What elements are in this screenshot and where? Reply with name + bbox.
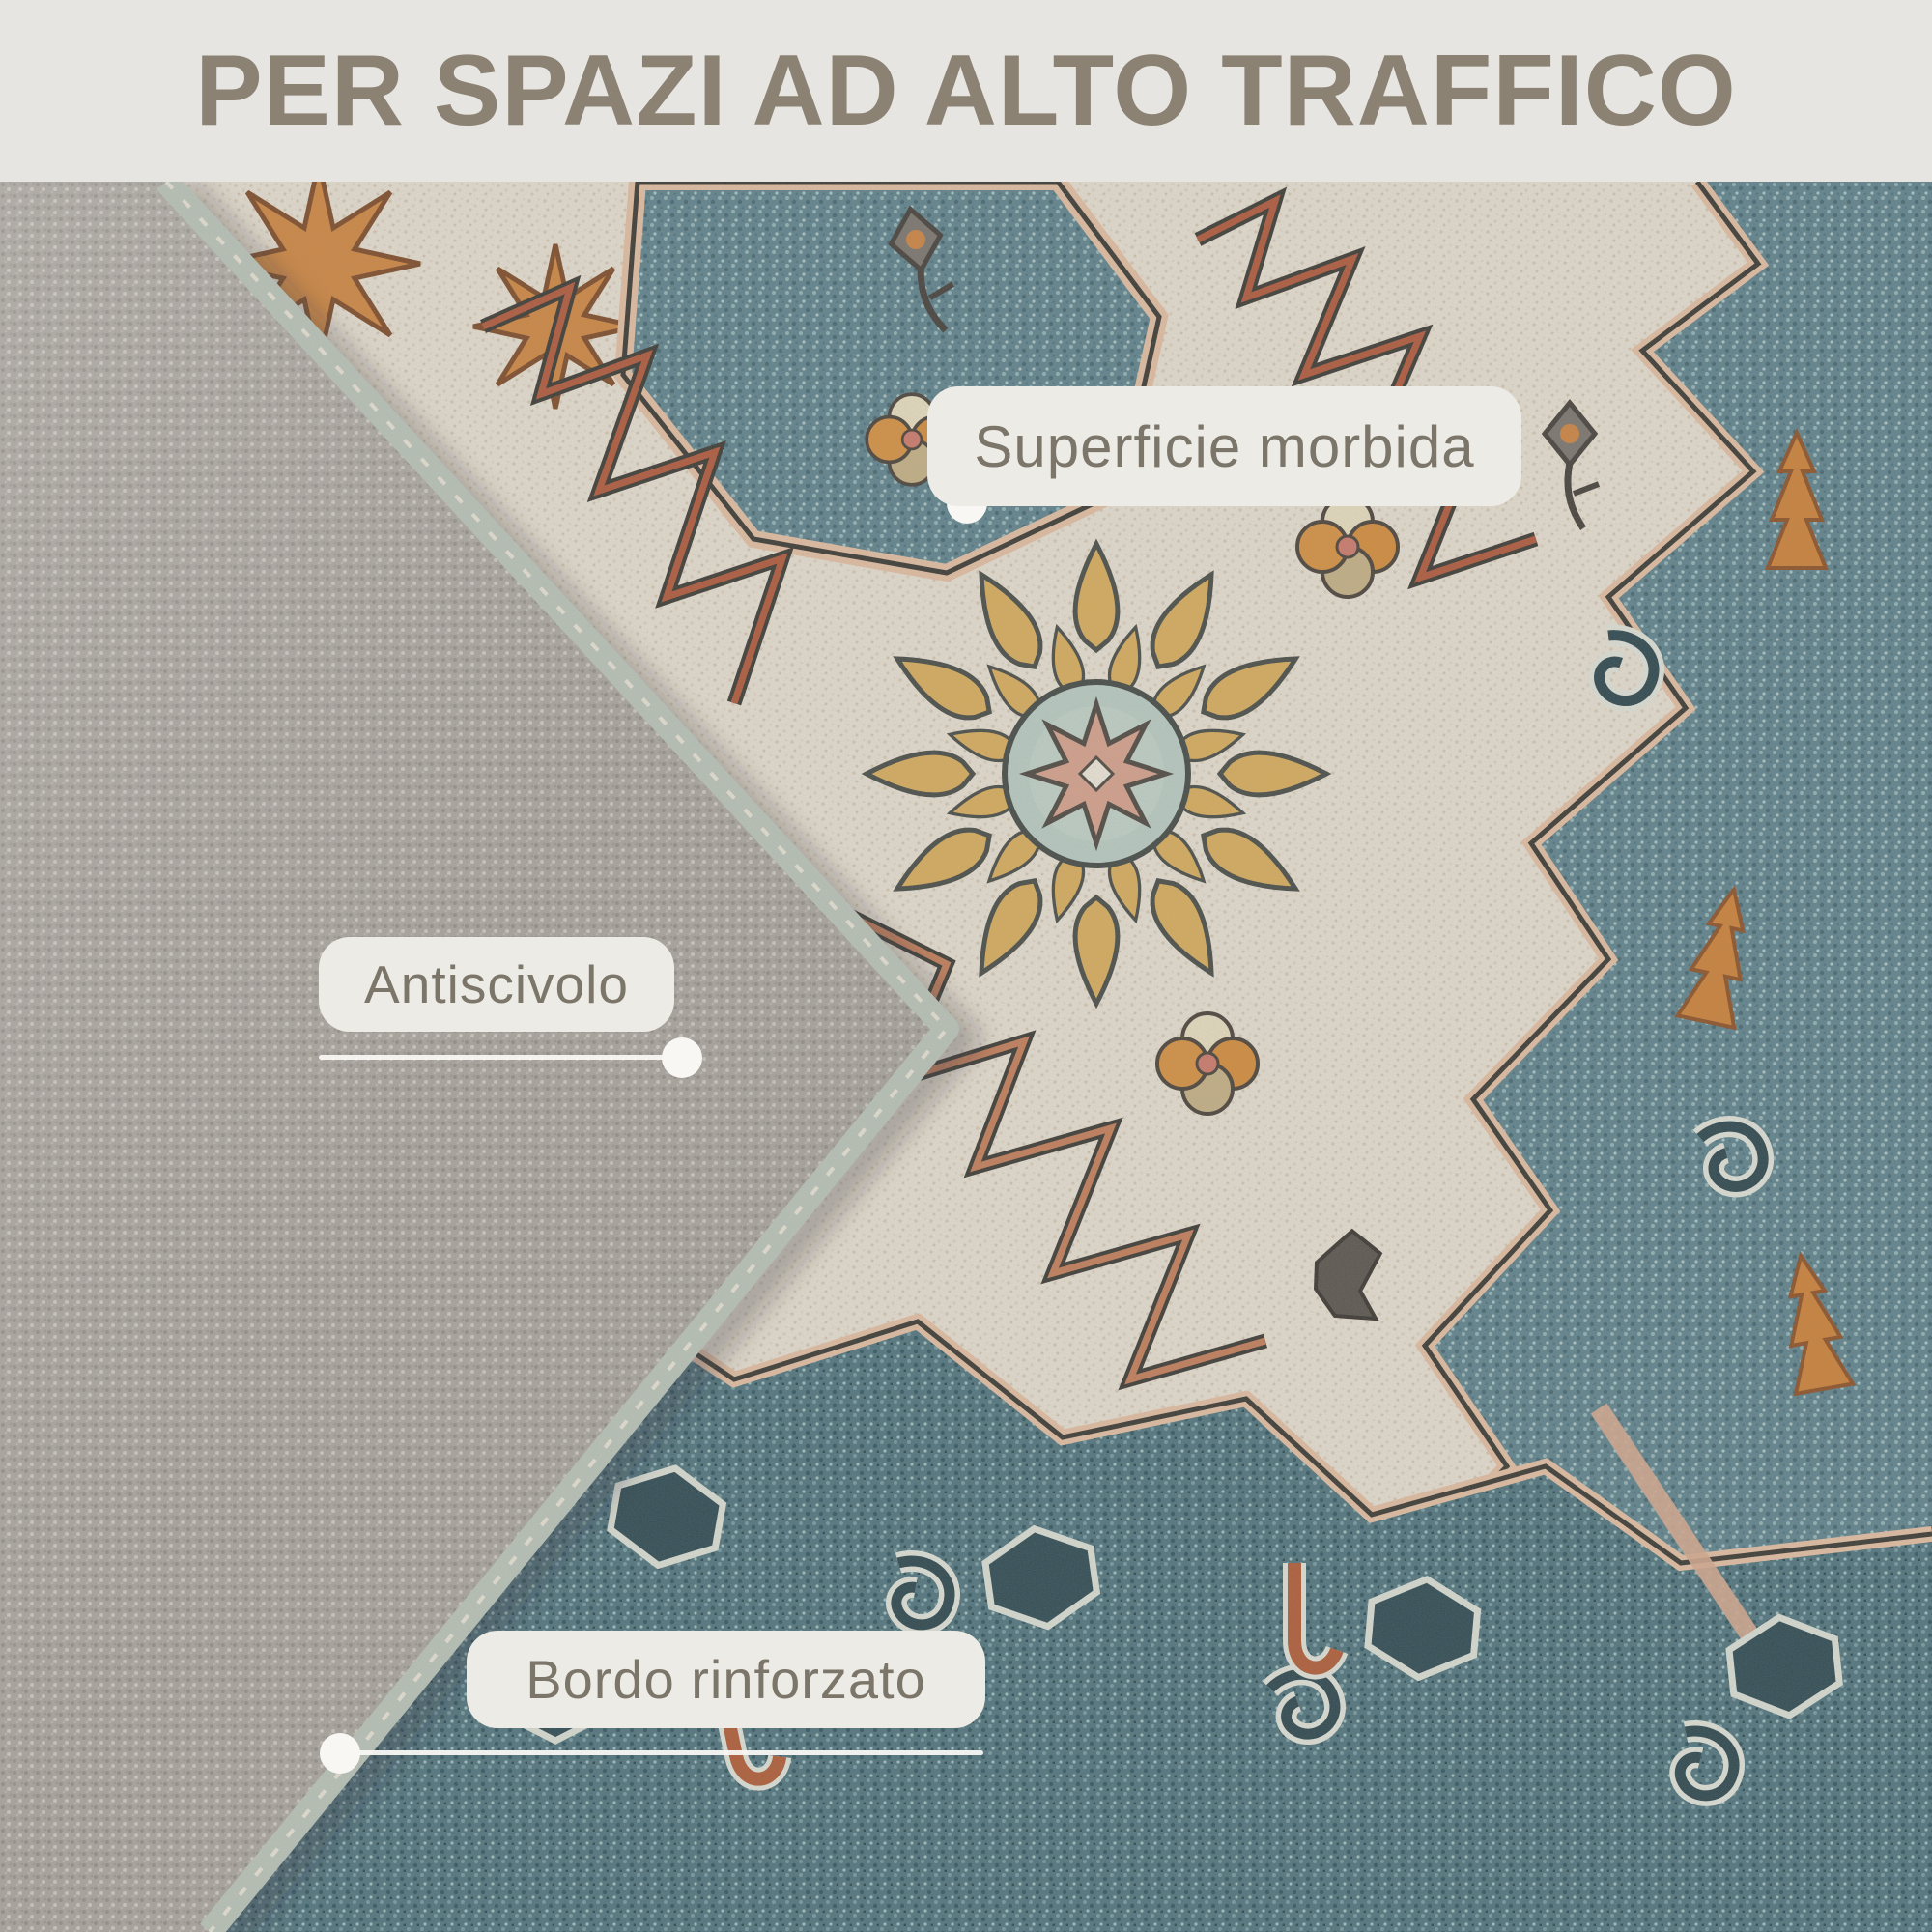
callout-line-anti-slip bbox=[319, 1055, 682, 1060]
callout-dot-anti-slip bbox=[662, 1037, 702, 1078]
callout-pill-anti-slip: Antiscivolo bbox=[319, 937, 674, 1032]
headline: PER SPAZI AD ALTO TRAFFICO bbox=[195, 34, 1737, 149]
callout-dot-reinforced-edge bbox=[320, 1733, 360, 1774]
callout-label-anti-slip: Antiscivolo bbox=[364, 953, 629, 1015]
callout-pill-soft-surface: Superficie morbida bbox=[927, 386, 1521, 506]
callout-pill-reinforced-edge: Bordo rinforzato bbox=[467, 1631, 985, 1728]
headline-banner: PER SPAZI AD ALTO TRAFFICO bbox=[0, 0, 1932, 182]
callout-label-soft-surface: Superficie morbida bbox=[974, 413, 1474, 480]
callout-line-reinforced-edge bbox=[340, 1750, 983, 1755]
product-photo: Superficie morbida Antiscivolo Bordo rin… bbox=[0, 182, 1932, 1932]
callout-label-reinforced-edge: Bordo rinforzato bbox=[526, 1648, 925, 1711]
